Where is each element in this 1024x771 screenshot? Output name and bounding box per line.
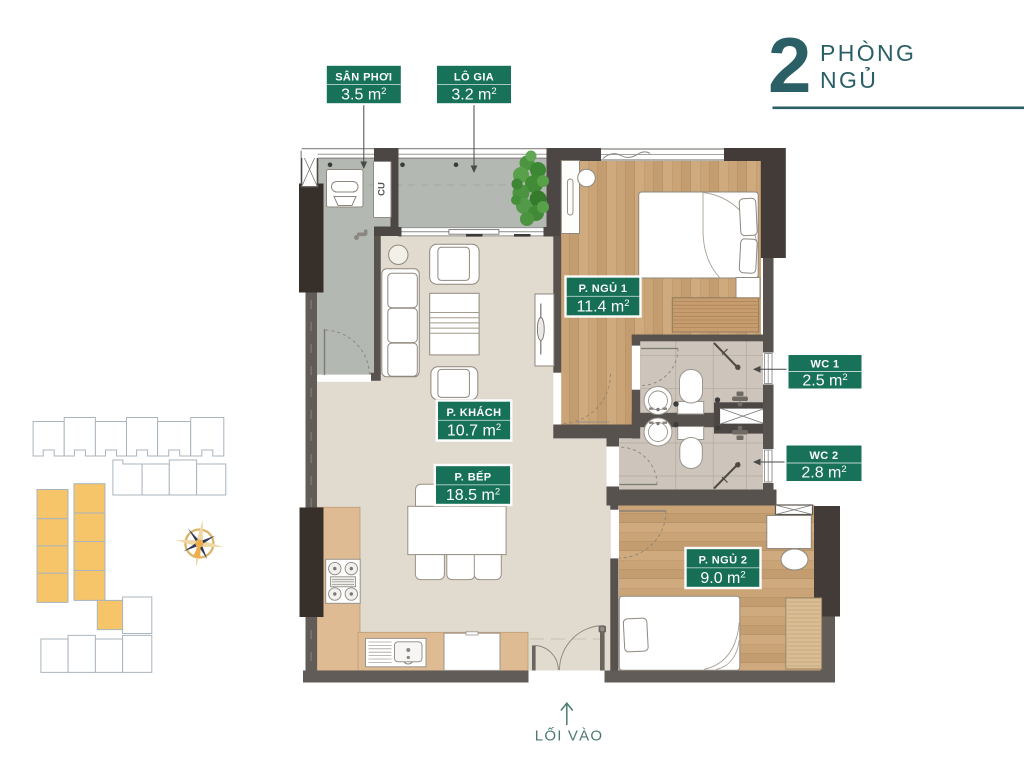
svg-text:9.0 m2: 9.0 m2 (700, 570, 745, 588)
svg-text:2.5 m2: 2.5 m2 (802, 372, 847, 390)
svg-text:2: 2 (768, 21, 811, 109)
svg-text:LỐI VÀO: LỐI VÀO (535, 727, 603, 745)
svg-text:WC 1: WC 1 (810, 359, 839, 371)
svg-text:P. KHÁCH: P. KHÁCH (447, 406, 502, 419)
svg-text:LÔ GIA: LÔ GIA (454, 71, 494, 84)
svg-text:PHÒNG: PHÒNG (820, 40, 916, 66)
svg-text:2.8 m2: 2.8 m2 (801, 464, 846, 482)
svg-text:CU: CU (377, 182, 388, 196)
svg-text:18.5 m2: 18.5 m2 (446, 487, 500, 505)
svg-text:P. NGỦ 1: P. NGỦ 1 (579, 282, 628, 295)
svg-text:10.7 m2: 10.7 m2 (447, 422, 501, 440)
svg-text:WC 2: WC 2 (809, 450, 838, 462)
svg-text:SÂN PHƠI: SÂN PHƠI (335, 71, 392, 84)
svg-text:P. NGỦ 2: P. NGỦ 2 (699, 554, 748, 567)
svg-text:NGỦ: NGỦ (820, 65, 878, 93)
svg-text:3.5 m2: 3.5 m2 (341, 86, 386, 104)
svg-text:3.2 m2: 3.2 m2 (451, 86, 496, 104)
svg-text:P. BẾP: P. BẾP (454, 471, 491, 484)
svg-text:11.4 m2: 11.4 m2 (576, 298, 629, 316)
